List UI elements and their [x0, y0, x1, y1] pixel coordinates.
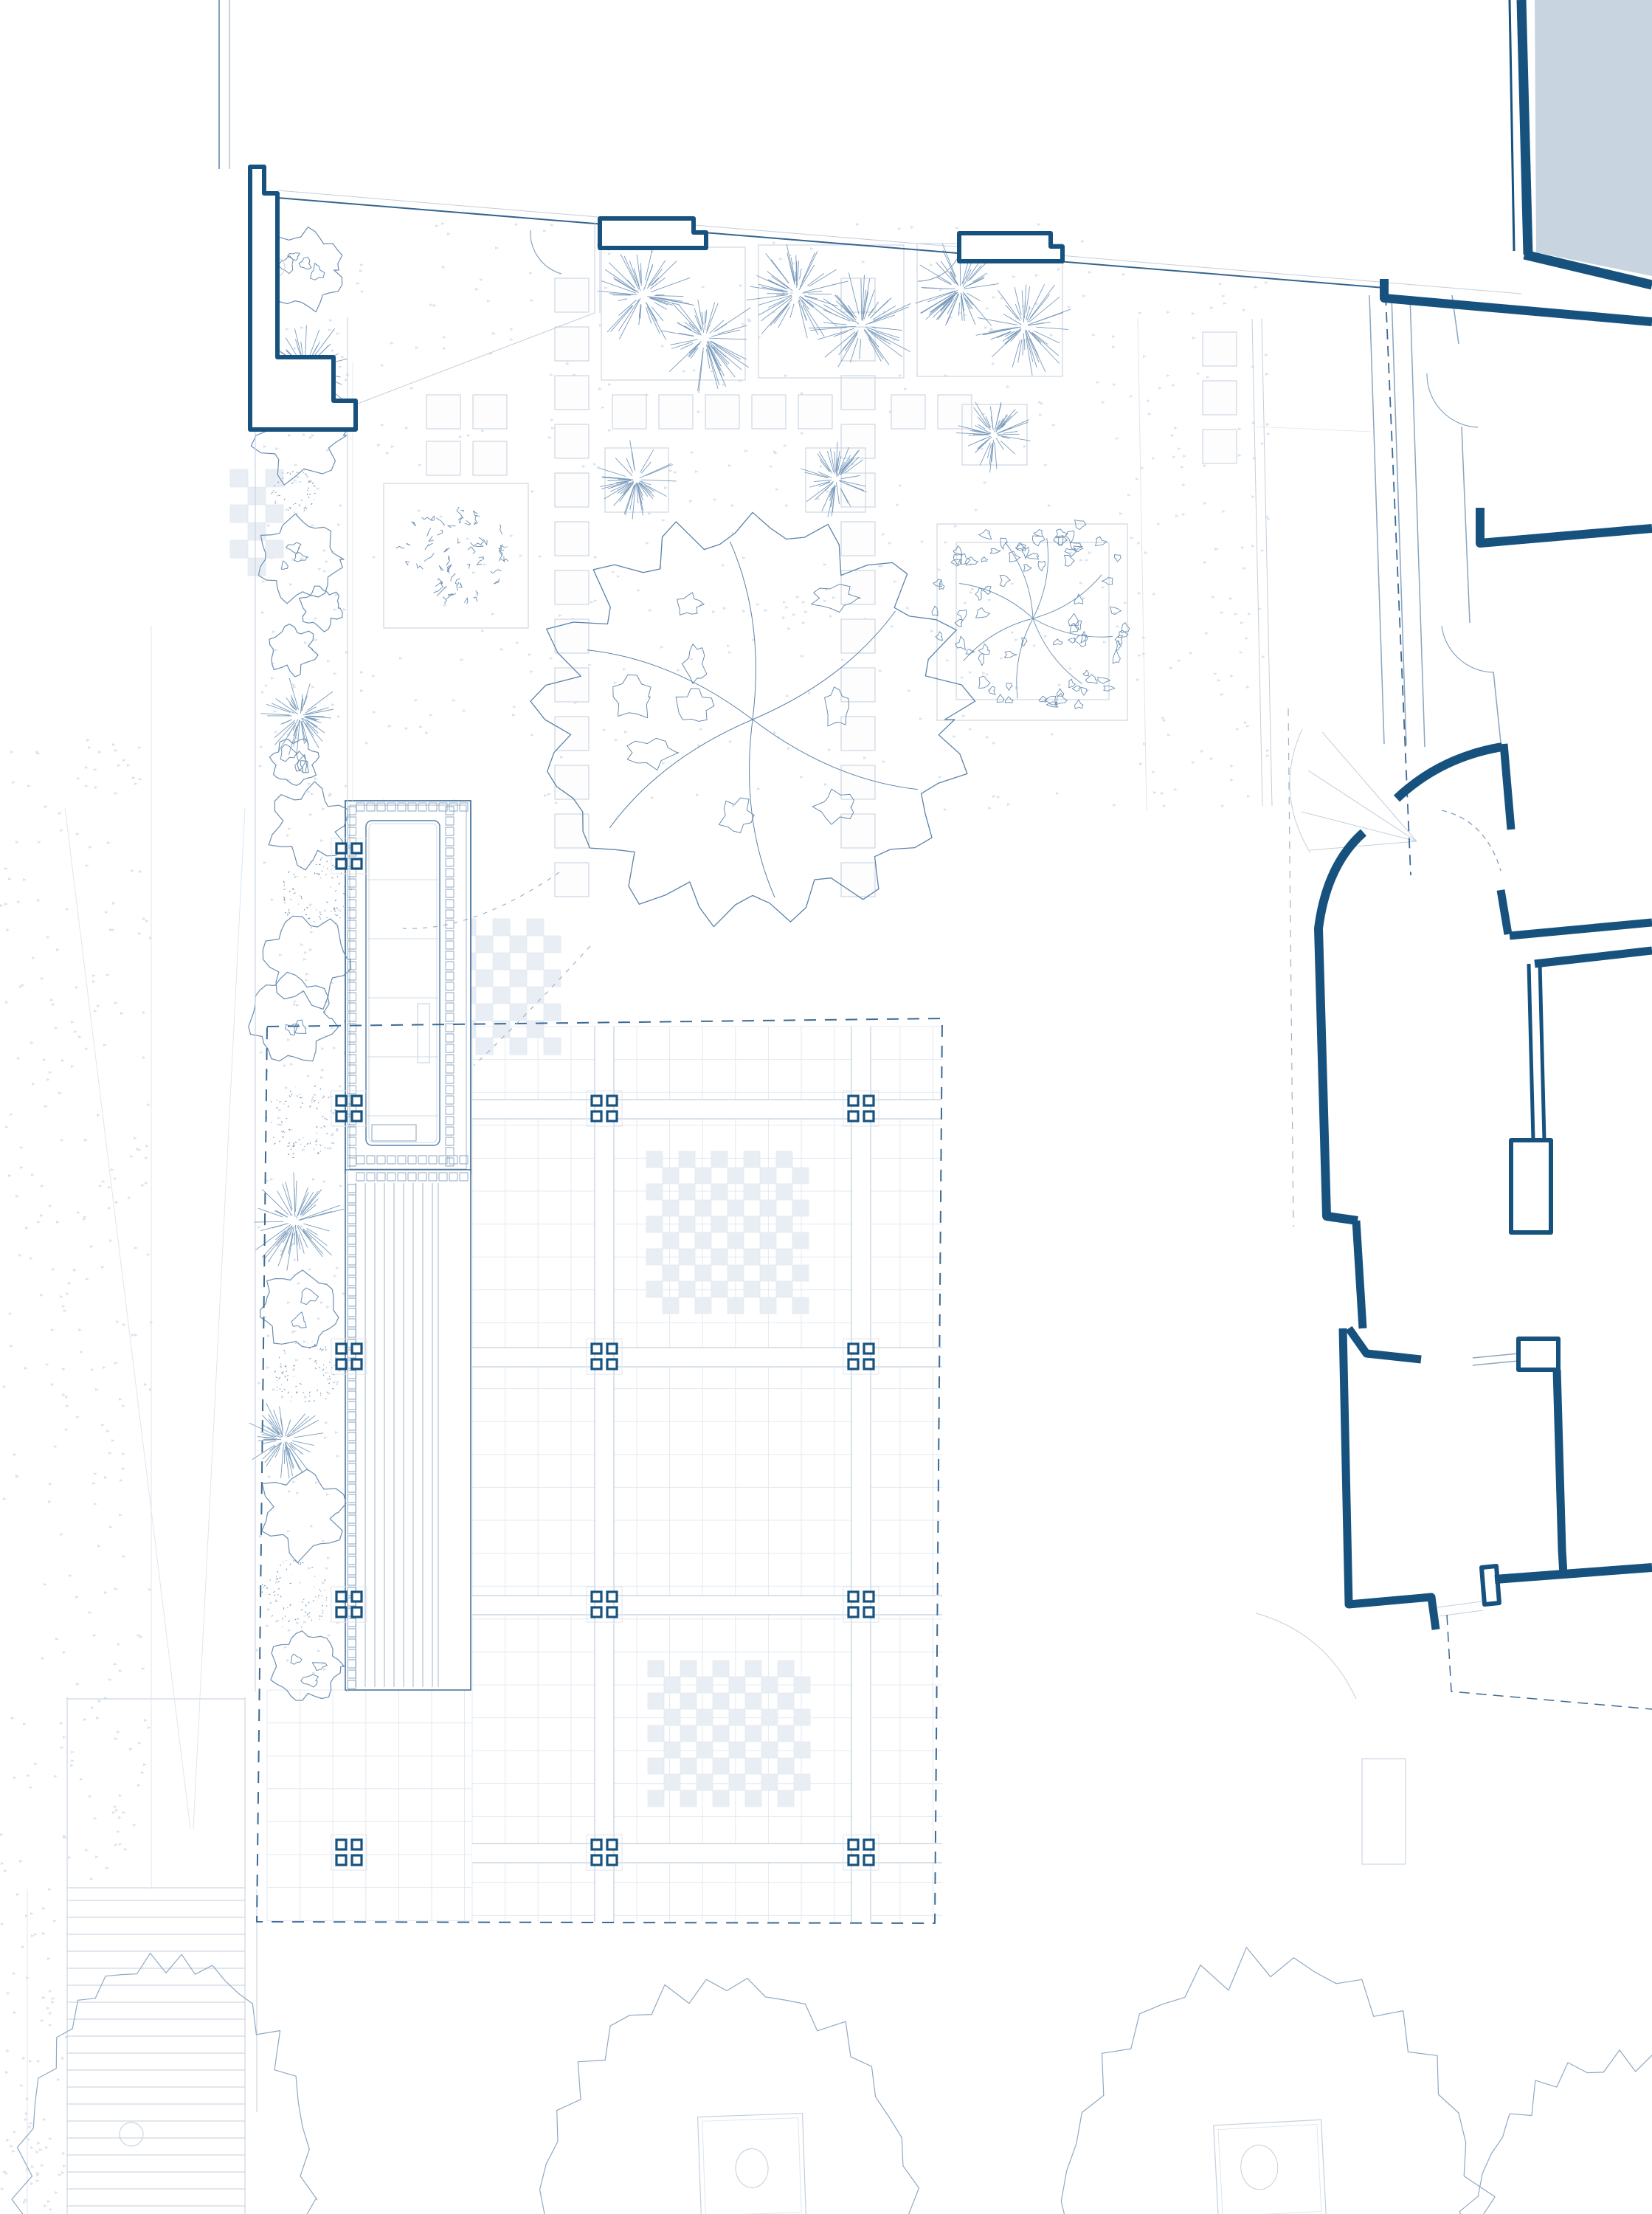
masonry-wall-curved: [1397, 747, 1502, 799]
shrub-starburst: [254, 1173, 344, 1271]
pergola-column: [336, 859, 346, 869]
street-tree-canopy: [532, 1979, 927, 2214]
paving-grid: [267, 1690, 472, 1922]
building-footprint-fill: [1535, 0, 1652, 276]
boundary-dashed-line: [1447, 1615, 1652, 1709]
masonry-wall: [1557, 1370, 1563, 1575]
pergola-column: [607, 1111, 617, 1121]
pergola-column: [352, 1111, 362, 1121]
pergola-column: [352, 859, 362, 869]
stipple-texture: [256, 319, 351, 1692]
construction-line: [1310, 841, 1417, 850]
shrub-starburst: [261, 678, 333, 755]
pergola-column: [864, 1840, 874, 1849]
construction-line: [1493, 672, 1501, 742]
construction-line: [1252, 319, 1262, 806]
construction-line: [65, 807, 190, 1829]
pergola-column: [336, 1344, 346, 1353]
masonry-wall: [1343, 1328, 1436, 1630]
shrub-starburst: [976, 284, 1071, 375]
checkerboard-paving: [648, 1660, 810, 1807]
pergola-column: [336, 844, 346, 853]
street-tree-canopy: [12, 1953, 317, 2214]
pergola-column: [849, 1111, 858, 1121]
masonry-wall: [1504, 744, 1511, 830]
pergola-column: [864, 1096, 874, 1106]
pergola-column: [849, 1607, 858, 1617]
tree-scallop: [262, 1469, 346, 1563]
pergola-column: [336, 1096, 346, 1106]
pergola-column: [592, 1592, 601, 1601]
pergola-column: [352, 1592, 362, 1601]
paving-slabs-layer: [384, 244, 1237, 897]
timber-deck: [345, 1170, 471, 1690]
door-swing-arc: [530, 230, 561, 274]
tree-dotted: [274, 1342, 340, 1406]
pergola-column: [864, 1855, 874, 1865]
pergola-column: [592, 1096, 601, 1106]
tree-dotted: [266, 1086, 338, 1158]
tree-scallop: [269, 782, 348, 870]
checkerboard-paving: [459, 919, 561, 1055]
site-plan-page: [0, 0, 1652, 2214]
masonry-wall: [1349, 1328, 1421, 1359]
checkerboard-paving: [230, 469, 283, 576]
door-swing-arc: [1290, 729, 1310, 853]
pergola-column: [336, 1855, 346, 1865]
masonry-wall: [1521, 0, 1528, 255]
paving-pad: [1362, 1759, 1406, 1864]
pergola-column: [864, 1344, 874, 1353]
pergola-column: [849, 1840, 858, 1849]
masonry-wall: [1535, 951, 1652, 964]
door-swing-arc: [918, 235, 964, 281]
pergola-column: [607, 1607, 617, 1617]
pergola-column: [592, 1111, 601, 1121]
pergola-column: [607, 1855, 617, 1865]
masonry-wall-curved: [1319, 832, 1364, 1221]
pergola-column: [607, 1359, 617, 1369]
tree-dotted: [262, 1559, 327, 1627]
pergola-column: [607, 1840, 617, 1849]
construction-line: [1462, 427, 1470, 623]
pergola-column: [336, 1111, 346, 1121]
street-tree-canopy: [1047, 1948, 1498, 2214]
tree-lobed: [269, 739, 319, 785]
construction-line: [1473, 1361, 1518, 1365]
pergola-column: [849, 1344, 858, 1353]
construction-line: [277, 198, 1384, 288]
shrub-starburst: [598, 441, 676, 520]
construction-line: [1437, 1601, 1482, 1607]
masonry-wall: [1510, 0, 1514, 251]
masonry-wall-outline: [1511, 1140, 1551, 1232]
pergola-column: [607, 1096, 617, 1106]
stairs-layer: [67, 1699, 245, 2206]
pergola-column: [592, 1359, 601, 1369]
site-plan-canvas: [0, 0, 1652, 2214]
pergola-column: [864, 1111, 874, 1121]
boundary-dashed-line: [1288, 708, 1293, 1227]
planting-bed-square: [605, 448, 668, 512]
construction-line: [1392, 295, 1406, 745]
construction-line: [277, 190, 1521, 294]
pergola-column: [849, 1592, 858, 1601]
checkerboard-paving: [646, 1151, 809, 1314]
construction-line: [1138, 319, 1147, 810]
tree-planter: [698, 2114, 806, 2214]
shrub-starburst: [598, 241, 694, 339]
tree-planter: [1214, 2120, 1327, 2214]
planting-bed-square: [956, 542, 1109, 700]
masonry-wall: [1495, 1568, 1652, 1579]
pergola-beam-band: [851, 1027, 871, 1922]
planting-bed-square: [937, 524, 1127, 720]
pergola-column: [592, 1344, 601, 1353]
tree-lobed: [260, 1270, 339, 1348]
door-swing-arc: [1427, 373, 1478, 427]
door-swing-arc: [1442, 626, 1493, 672]
pergola-column: [592, 1840, 601, 1849]
masonry-wall-outline: [600, 218, 706, 248]
stair-landing: [67, 1699, 245, 1888]
construction-line: [1308, 770, 1417, 841]
shrub-starburst: [661, 300, 750, 393]
masonry-wall: [1356, 1221, 1363, 1328]
pergola-column: [336, 1359, 346, 1369]
construction-line: [1322, 732, 1417, 841]
ground-stipple-layer: [0, 222, 1271, 2211]
shrub-scribble: [396, 507, 508, 604]
pergola-column: [592, 1855, 601, 1865]
stipple-texture: [1, 1888, 69, 2211]
masonry-wall: [1540, 964, 1544, 1140]
construction-line: [1262, 319, 1272, 806]
pergola-column: [864, 1592, 874, 1601]
stepping-slabs: [426, 278, 1237, 897]
pergola-column: [864, 1359, 874, 1369]
pergola-column: [336, 1592, 346, 1601]
pergola-column: [352, 1840, 362, 1849]
shrub-starburst: [249, 1403, 324, 1478]
pool-deck-layer: [345, 801, 471, 1690]
pergola-column: [352, 1344, 362, 1353]
construction-line: [1439, 1610, 1483, 1616]
dripline-dashed-arc: [1442, 810, 1501, 871]
pergola-column: [336, 1840, 346, 1849]
masonry-wall: [1480, 508, 1652, 543]
construction-line: [193, 807, 245, 1829]
masonry-wall-outline: [959, 233, 1062, 261]
pergola-column: [352, 1607, 362, 1617]
planting-bed-square: [384, 483, 528, 628]
pergola-column: [352, 844, 362, 853]
pool-water: [366, 821, 440, 1145]
shrub-starburst: [747, 244, 848, 338]
pergola-column: [607, 1344, 617, 1353]
masonry-wall-outline: [1482, 1566, 1499, 1604]
tree-trunk: [120, 2122, 143, 2146]
pergola-column: [607, 1592, 617, 1601]
masonry-wall: [1510, 922, 1652, 936]
pergola-column: [849, 1359, 858, 1369]
construction-line: [1369, 295, 1384, 744]
stipple-texture: [0, 739, 153, 1880]
construction-line: [1410, 297, 1425, 747]
tree-scallop: [263, 916, 350, 1009]
pergola-column: [849, 1096, 858, 1106]
pergola-beam-band: [595, 1027, 614, 1922]
pergola-column: [864, 1607, 874, 1617]
pergola-column: [352, 1855, 362, 1865]
masonry-wall-outline: [250, 167, 356, 430]
construction-line: [1254, 427, 1371, 432]
street-trees-layer: [12, 1948, 1652, 2214]
masonry-wall: [1529, 964, 1533, 1140]
masonry-wall: [1501, 890, 1508, 934]
stair-treads: [67, 1900, 245, 2206]
pergola-column: [849, 1855, 858, 1865]
pergola-column: [592, 1607, 601, 1617]
pergola-column: [352, 1096, 362, 1106]
construction-line: [1473, 1353, 1518, 1358]
door-swing-arc: [1256, 1613, 1356, 1699]
stipple-texture: [356, 222, 1139, 811]
pergola-column: [352, 1359, 362, 1369]
tree-lobed: [249, 972, 339, 1061]
masonry-wall-outline: [1518, 1339, 1558, 1370]
pergola-column: [336, 1607, 346, 1617]
